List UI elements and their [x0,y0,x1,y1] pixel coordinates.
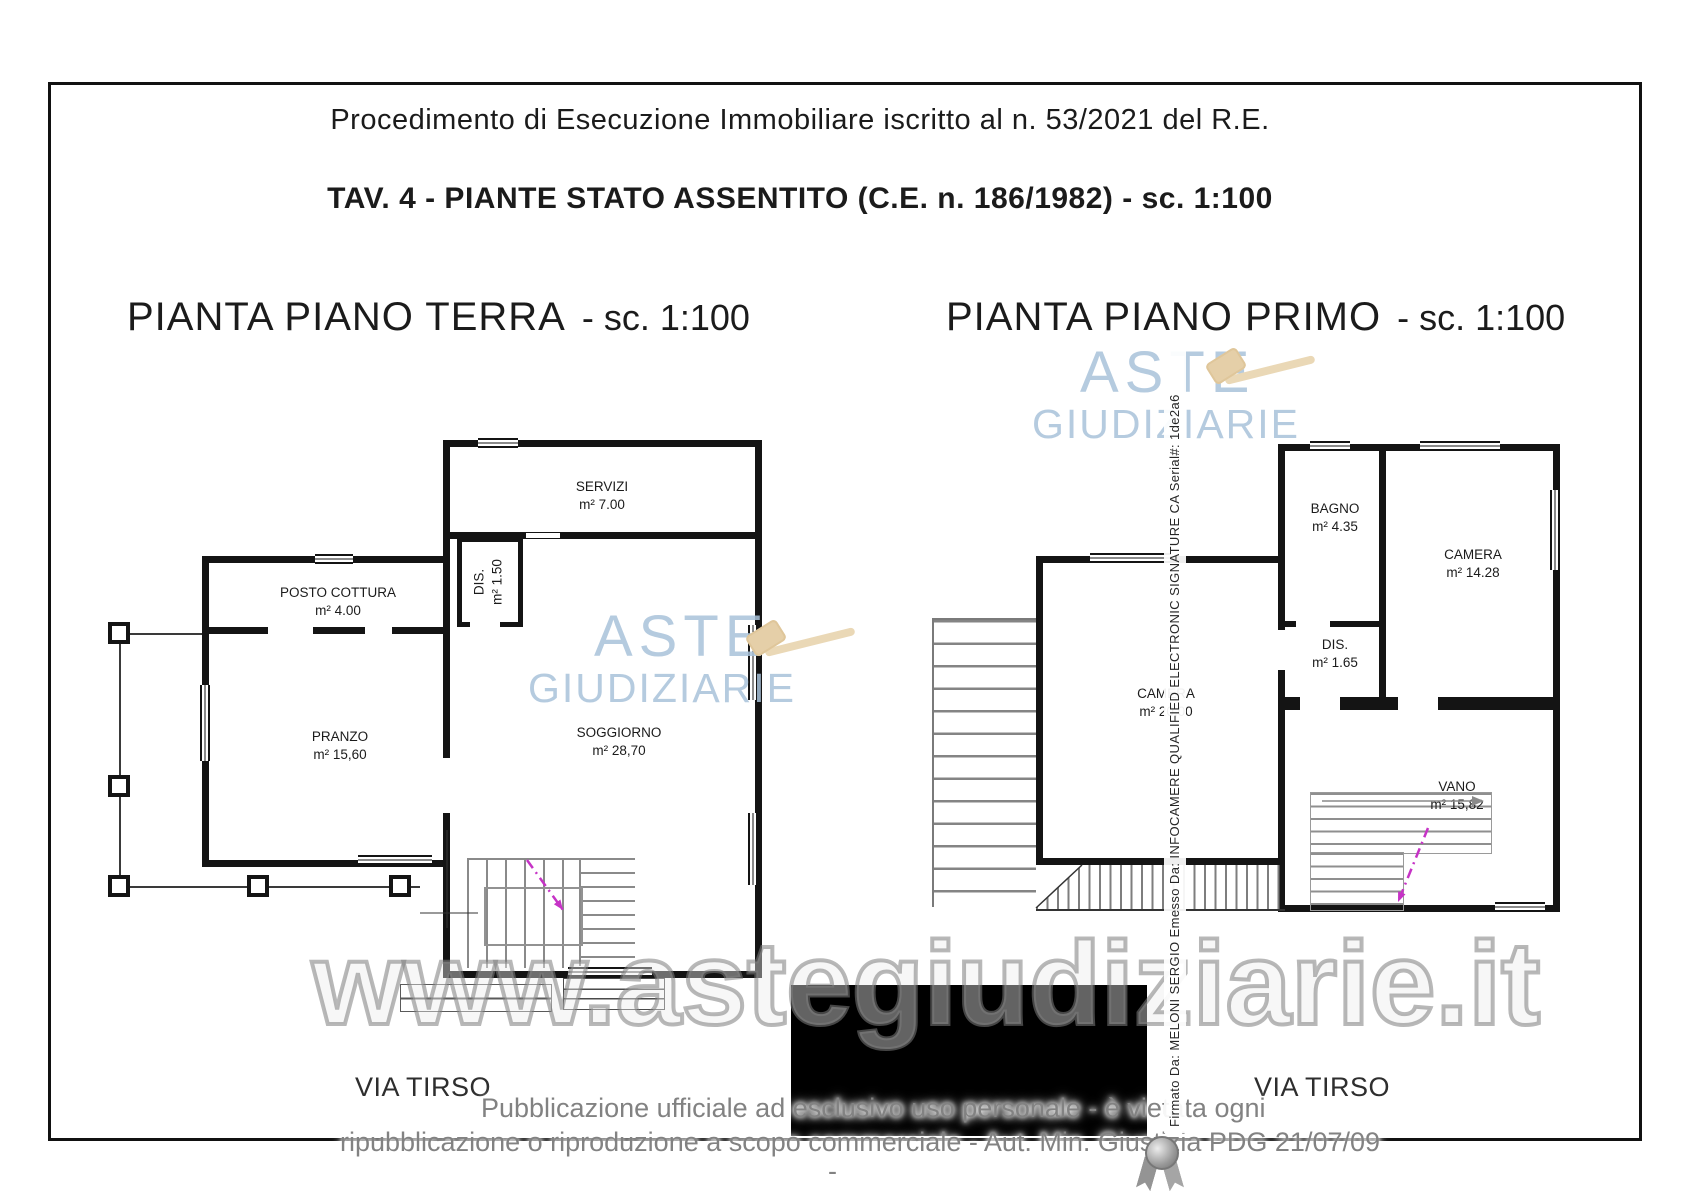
window [1550,490,1560,570]
stairs-terra [579,858,635,966]
porch-pillar [108,775,130,797]
window [200,685,210,761]
porch-pillar [108,875,130,897]
room-label-posto-cottura: POSTO COTTURA m² 4.00 [280,584,396,619]
window [358,855,432,865]
room-label-vano: VANO m² 15,82 [1430,778,1483,813]
porch-pillar [108,622,130,644]
room-label-bagno: BAGNO m² 4.35 [1311,500,1360,535]
entrance-window [568,967,652,977]
door-opening [1296,619,1330,629]
street-label-primo: VIA TIRSO [1254,1072,1390,1103]
porch-line [119,886,420,888]
plan-title-terra-text: PIANTA PIANO TERRA [127,295,566,339]
window [1495,902,1545,912]
window [1090,553,1170,563]
door-opening [1272,630,1298,670]
exterior-stoop [400,984,552,1012]
exterior-steps [563,978,665,1010]
window [748,813,758,885]
procedure-title: Procedimento di Esecuzione Immobiliare i… [280,104,1320,137]
porch-line [119,633,203,635]
door-opening [526,533,560,538]
porch-pillar [389,875,411,897]
window [1310,441,1350,451]
wall-divider-seg [313,627,365,634]
digital-signature-text: Firmato Da: MELONI SERGIO Emesso Da: INF… [1164,343,1186,1133]
disclaimer-line1: Pubblicazione ufficiale ad esclusivo uso… [481,1093,1266,1124]
door-opening [1300,694,1340,710]
plan-title-primo: PIANTA PIANO PRIMO- sc. 1:100 [946,295,1565,340]
rosette-seal-icon [1128,1136,1192,1191]
room-label-dis-terra: DIS. m² 1.50 [470,559,505,605]
plan-title-primo-scale: - sc. 1:100 [1397,297,1565,338]
disclaimer-line2: ripubblicazione o riproduzione a scopo c… [340,1127,1380,1158]
room-label-soggiorno: SOGGIORNO m² 28,70 [577,724,662,759]
door-opening [1398,694,1438,710]
wall-divider-seg [392,627,450,634]
door-opening [470,621,500,632]
porch-line [119,633,121,888]
porch-pillar [247,875,269,897]
window [1420,441,1500,451]
window [315,554,353,564]
footer-dash: - [828,1156,837,1187]
document-page: Procedimento di Esecuzione Immobiliare i… [0,0,1684,1191]
balcony-hatch [1036,865,1285,911]
room-label-dis-primo: DIS. m² 1.65 [1312,636,1358,671]
room-label-camera1: CAMERA m² 14.28 [1444,546,1502,581]
window [748,625,758,700]
window [478,438,518,448]
plan-title-primo-text: PIANTA PIANO PRIMO [946,295,1381,339]
plan-title-terra: PIANTA PIANO TERRA- sc. 1:100 [127,295,750,340]
sheet-title: TAV. 4 - PIANTE STATO ASSENTITO (C.E. n.… [280,182,1320,216]
stairs-primo [1310,852,1404,911]
stairs-landing [484,887,583,946]
room-label-pranzo: PRANZO m² 15,60 [312,728,368,763]
street-label-terra: VIA TIRSO [355,1072,491,1103]
door-opening [442,758,451,813]
external-staircase [932,618,1038,907]
wall-bagno-right [1379,444,1386,704]
plan-title-terra-scale: - sc. 1:100 [582,297,750,338]
room-label-servizi: SERVIZI m² 7.00 [576,478,628,513]
wall-divider-seg [202,627,268,634]
